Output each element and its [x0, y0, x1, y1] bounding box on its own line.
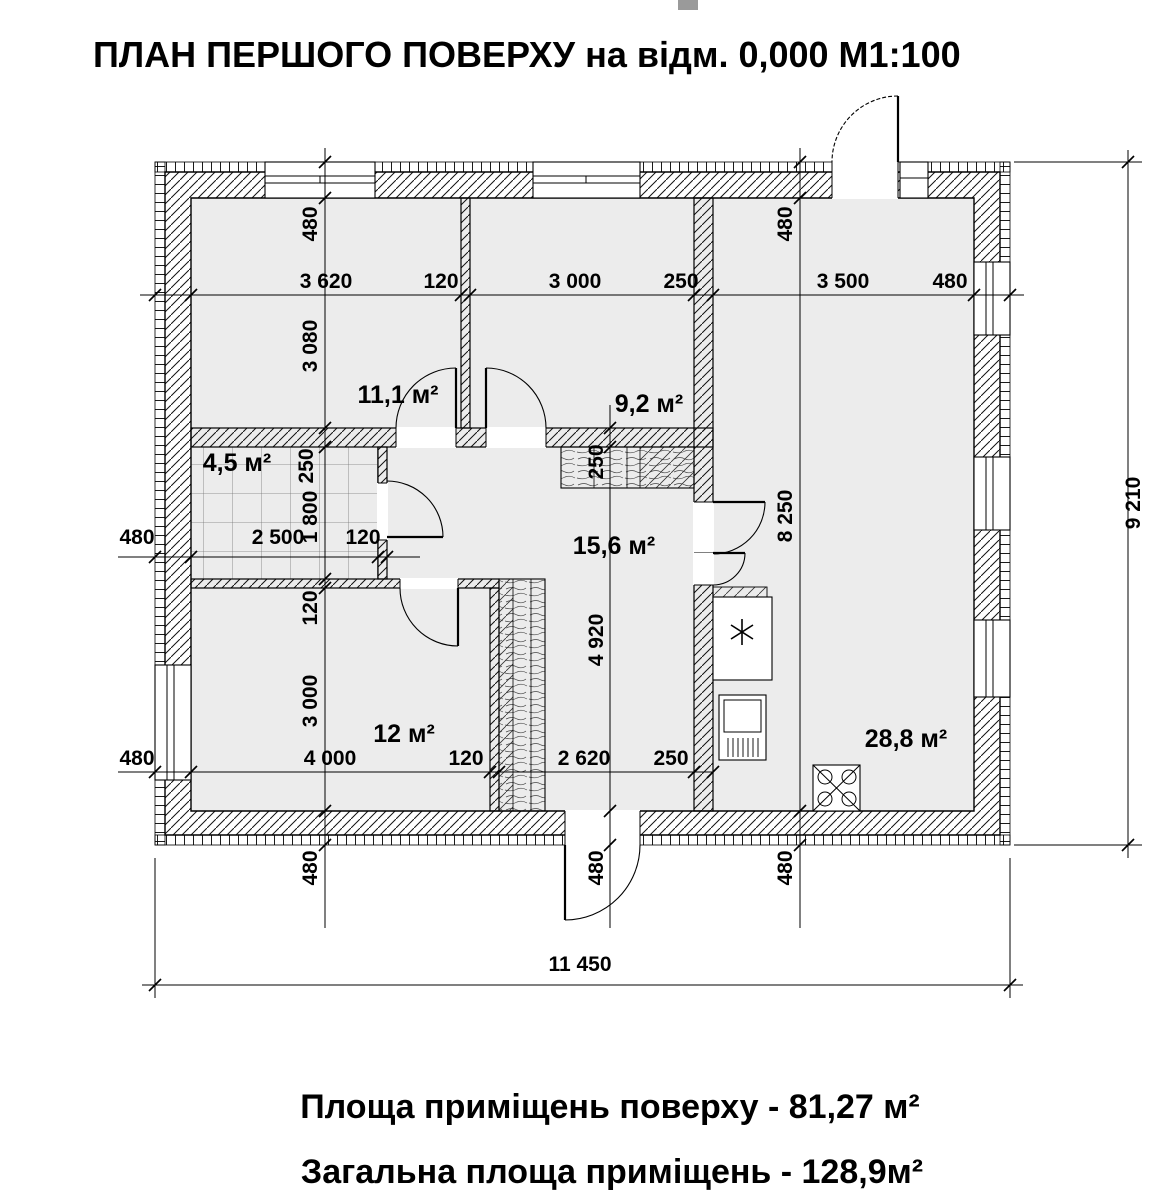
dim-label: 120 [423, 270, 458, 293]
room-area-label: 15,6 м² [573, 532, 655, 560]
window-right-3 [974, 620, 1010, 697]
dim-label: 480 [774, 206, 797, 241]
wardrobe-vertical [499, 579, 545, 811]
dim-label: 250 [663, 270, 698, 293]
window-right-1 [974, 262, 1010, 335]
dim-label: 480 [585, 850, 608, 885]
shelf [713, 587, 767, 597]
dim-label: 4 920 [585, 614, 608, 667]
dim-label: 480 [774, 850, 797, 885]
window-right-2 [974, 457, 1010, 530]
appliance [719, 695, 766, 760]
scan-artifact [678, 0, 698, 10]
page-title: ПЛАН ПЕРШОГО ПОВЕРХУ на відм. 0,000 М1:1… [93, 34, 961, 75]
room-area-label: 11,1 м² [357, 381, 438, 409]
room-area-label: 9,2 м² [615, 390, 684, 418]
window-left-1 [155, 665, 191, 780]
floor-area-total: Площа приміщень поверху - 81,27 м² [300, 1088, 920, 1126]
dim-label: 3 000 [299, 675, 322, 728]
dim-label: 480 [119, 747, 154, 770]
dim-label: 480 [299, 206, 322, 241]
floor-plan: ПЛАН ПЕРШОГО ПОВЕРХУ на відм. 0,000 М1:1… [0, 0, 1173, 1200]
dim-overall-width: 11 450 [548, 953, 611, 976]
dim-label: 3 000 [549, 270, 602, 293]
dim-label: 3 500 [817, 270, 870, 293]
dim-label: 2 500 [252, 526, 305, 549]
dim-label: 120 [448, 747, 483, 770]
entrance-door-top [832, 96, 898, 199]
dim-label: 250 [585, 444, 608, 479]
stove [813, 765, 860, 811]
room-area-label: 12 м² [373, 720, 435, 748]
dim-label: 480 [119, 526, 154, 549]
dim-label: 1 800 [299, 491, 322, 544]
plan-drawing: 3 620 120 3 000 250 3 500 480 480 2 500 … [118, 96, 1145, 998]
door-arc [832, 96, 898, 162]
dim-label: 8 250 [774, 490, 797, 543]
dim-label: 480 [932, 270, 967, 293]
dim-label: 2 620 [558, 747, 611, 770]
dim-label: 120 [345, 526, 380, 549]
window-top-3 [900, 162, 928, 198]
area-summary: Площа приміщень поверху - 81,27 м² Загал… [300, 1088, 923, 1191]
room-area-label: 4,5 м² [203, 449, 272, 477]
dim-overall-height: 9 210 [1122, 477, 1145, 530]
window-top-2 [533, 162, 640, 198]
dim-label: 480 [299, 850, 322, 885]
dim-label: 120 [299, 590, 322, 625]
dim-label: 250 [295, 448, 318, 483]
wardrobe-horizontal [561, 447, 694, 488]
dim-label: 3 080 [299, 320, 322, 373]
dim-label: 3 620 [300, 270, 353, 293]
dim-label: 4 000 [304, 747, 357, 770]
building-area-total: Загальна площа приміщень - 128,9м² [301, 1153, 923, 1191]
dim-label: 250 [653, 747, 688, 770]
room-area-label: 28,8 м² [865, 725, 947, 753]
